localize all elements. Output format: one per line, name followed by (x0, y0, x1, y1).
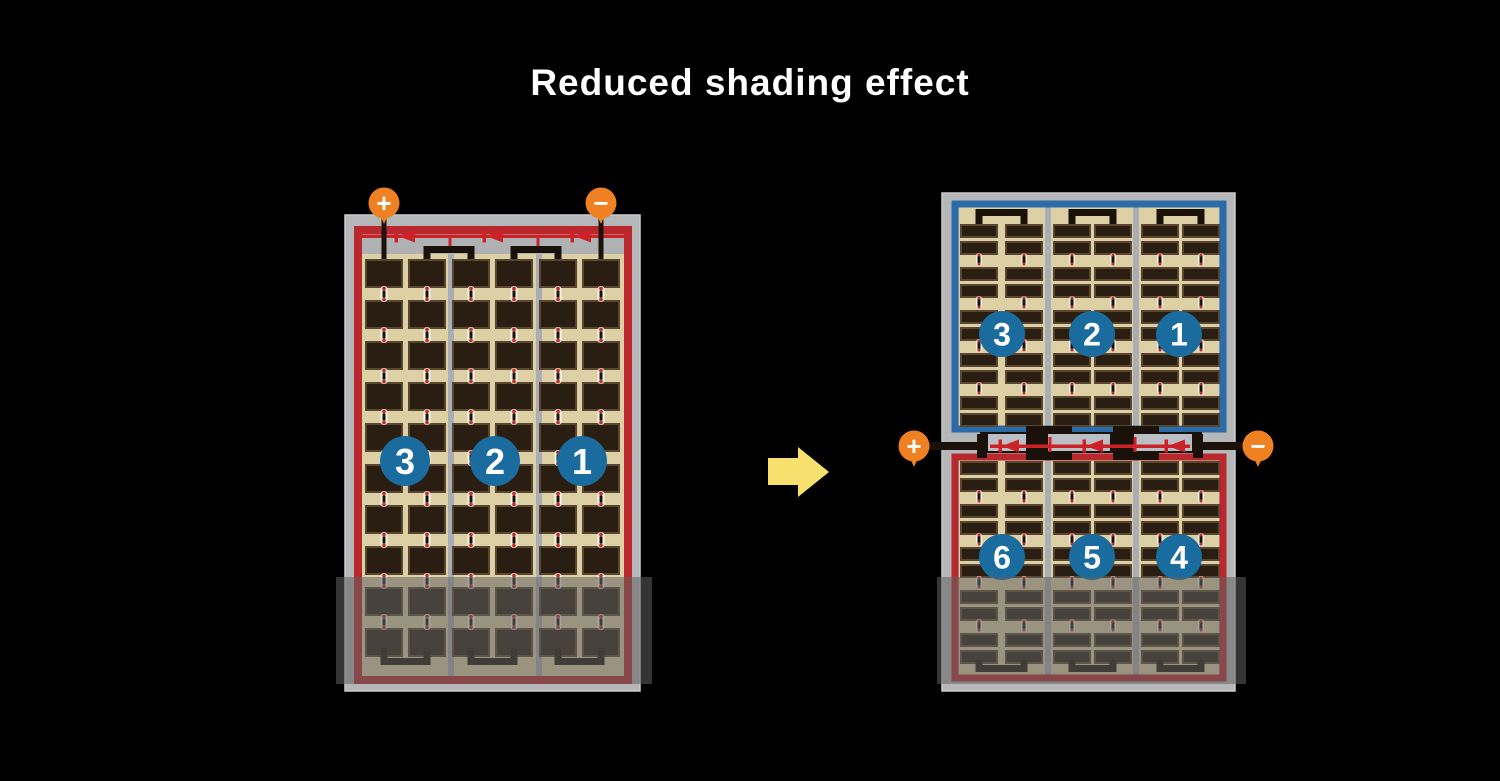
cell-connector (1157, 296, 1163, 309)
cell-connector (1110, 490, 1116, 503)
cell-connector (598, 368, 605, 384)
section-number-label: 1 (572, 441, 592, 482)
solar-cell (583, 342, 619, 369)
section-number-label: 4 (1170, 540, 1188, 576)
solar-cell (1006, 414, 1042, 426)
solar-cell (583, 506, 619, 533)
solar-cell (1095, 522, 1131, 534)
solar-cell (1183, 462, 1219, 474)
cell-connector (511, 286, 518, 302)
solar-cell (1142, 414, 1178, 426)
section-number-badge: 2 (1069, 311, 1115, 357)
section-number-badge: 1 (557, 436, 607, 486)
cell-connector (976, 382, 982, 395)
solar-cell (1142, 371, 1178, 383)
solar-cell (496, 301, 532, 328)
solar-cell (1006, 397, 1042, 409)
solar-cell (1095, 268, 1131, 280)
solar-cell (540, 301, 576, 328)
cell-connector (1198, 533, 1204, 546)
cell-connector (468, 491, 475, 507)
solar-cell (409, 383, 445, 410)
solar-cell (961, 397, 997, 409)
solar-cell (1006, 371, 1042, 383)
plus-terminal-label: + (376, 188, 391, 218)
plus-terminal: + (899, 431, 930, 468)
cell-connector (1069, 490, 1075, 503)
solar-cell (1006, 354, 1042, 366)
solar-cell (1054, 371, 1090, 383)
solar-cell (1095, 505, 1131, 517)
transition-arrow (768, 447, 829, 497)
cell-connector (381, 327, 388, 343)
cell-connector (976, 490, 982, 503)
solar-cell (366, 383, 402, 410)
solar-cell (1142, 285, 1178, 297)
cell-connector (1198, 296, 1204, 309)
shading-overlay (937, 577, 1246, 684)
solar-cell (583, 301, 619, 328)
solar-cell (1006, 479, 1042, 491)
solar-cell (1183, 354, 1219, 366)
bus-tap (1049, 437, 1052, 453)
solar-cell (1183, 505, 1219, 517)
cell-connector (1157, 253, 1163, 266)
wire-end-post (1193, 434, 1203, 458)
solar-cell (1183, 285, 1219, 297)
solar-cell (1095, 354, 1131, 366)
section-number-label: 5 (1083, 540, 1101, 576)
solar-cell (1054, 522, 1090, 534)
solar-cell (1142, 522, 1178, 534)
solar-module-diagram: +−321321654+− (0, 0, 1500, 781)
solar-cell (1006, 462, 1042, 474)
plus-terminal-label: + (906, 431, 921, 461)
solar-cell (1095, 285, 1131, 297)
cell-connector (1021, 533, 1027, 546)
solar-cell (453, 342, 489, 369)
cell-connector (424, 286, 431, 302)
cell-connector (555, 491, 562, 507)
solar-cell (409, 260, 445, 287)
cell-connector (511, 532, 518, 548)
cell-connector (1157, 490, 1163, 503)
cell-connector (1069, 253, 1075, 266)
cell-connector (1021, 296, 1027, 309)
solar-cell (409, 506, 445, 533)
solar-cell (453, 301, 489, 328)
cell-connector (511, 327, 518, 343)
section-number-label: 3 (395, 441, 415, 482)
section-number-label: 2 (1083, 317, 1101, 353)
solar-cell (1142, 242, 1178, 254)
section-number-label: 1 (1170, 317, 1188, 353)
cell-connector (424, 327, 431, 343)
solar-cell (1183, 479, 1219, 491)
cell-connector (598, 286, 605, 302)
solar-cell (1054, 505, 1090, 517)
solar-cell (1142, 462, 1178, 474)
section-number-label: 3 (993, 317, 1011, 353)
solar-cell (409, 547, 445, 574)
solar-cell (583, 260, 619, 287)
solar-cell (1054, 479, 1090, 491)
solar-cell (496, 547, 532, 574)
solar-cell (1183, 371, 1219, 383)
cell-connector (424, 409, 431, 425)
solar-cell (496, 342, 532, 369)
section-number-badge: 1 (1156, 311, 1202, 357)
cell-connector (555, 286, 562, 302)
solar-cell (1054, 462, 1090, 474)
cell-connector (468, 327, 475, 343)
section-number-label: 6 (993, 540, 1011, 576)
cell-connector (555, 409, 562, 425)
right-panel-module: 321654+− (899, 193, 1274, 691)
solar-cell (1054, 225, 1090, 237)
cell-connector (555, 327, 562, 343)
solar-cell (961, 522, 997, 534)
solar-cell (961, 371, 997, 383)
cell-connector (555, 368, 562, 384)
solar-cell (1054, 354, 1090, 366)
solar-cell (1006, 225, 1042, 237)
solar-cell (409, 342, 445, 369)
crossing-wire (1026, 452, 1072, 460)
section-number-badge: 3 (979, 311, 1025, 357)
solar-cell (1183, 225, 1219, 237)
solar-cell (453, 383, 489, 410)
solar-cell (1183, 268, 1219, 280)
cell-connector (1069, 382, 1075, 395)
cell-connector (381, 532, 388, 548)
cell-connector (598, 491, 605, 507)
left-panel-module: +−321 (336, 188, 652, 692)
cell-connector (598, 532, 605, 548)
cell-connector (1110, 253, 1116, 266)
solar-cell (1142, 397, 1178, 409)
solar-cell (1095, 414, 1131, 426)
section-number-badge: 6 (979, 534, 1025, 580)
cell-connector (381, 286, 388, 302)
cell-connector (381, 368, 388, 384)
solar-cell (1095, 371, 1131, 383)
solar-cell (961, 414, 997, 426)
cell-connector (1021, 382, 1027, 395)
solar-cell (540, 342, 576, 369)
solar-cell (1095, 397, 1131, 409)
solar-cell (1183, 242, 1219, 254)
cell-connector (555, 532, 562, 548)
minus-terminal-label: − (1250, 431, 1265, 461)
solar-cell (1183, 414, 1219, 426)
section-number-label: 2 (485, 441, 505, 482)
solar-cell (540, 506, 576, 533)
right-arrow-icon (768, 447, 829, 497)
cell-connector (1198, 490, 1204, 503)
cell-connector (1198, 382, 1204, 395)
cell-connector (468, 368, 475, 384)
cell-connector (381, 491, 388, 507)
solar-cell (961, 354, 997, 366)
solar-cell (540, 260, 576, 287)
bus-tap (1134, 437, 1137, 453)
cell-connector (976, 533, 982, 546)
solar-cell (496, 506, 532, 533)
section-separator (1133, 207, 1139, 426)
solar-cell (540, 383, 576, 410)
solar-cell (961, 462, 997, 474)
cell-connector (424, 368, 431, 384)
section-number-badge: 5 (1069, 534, 1115, 580)
solar-cell (1142, 479, 1178, 491)
cell-connector (511, 491, 518, 507)
cell-connector (381, 409, 388, 425)
solar-cell (583, 383, 619, 410)
cell-connector (1110, 296, 1116, 309)
solar-cell (366, 506, 402, 533)
cell-connector (976, 296, 982, 309)
cell-connector (1110, 382, 1116, 395)
solar-cell (1095, 225, 1131, 237)
solar-cell (453, 547, 489, 574)
section-number-badge: 2 (470, 436, 520, 486)
cell-connector (468, 409, 475, 425)
solar-cell (1006, 505, 1042, 517)
junction-gray-segment (988, 434, 1026, 451)
cell-connector (1198, 253, 1204, 266)
solar-cell (1006, 522, 1042, 534)
solar-cell (1142, 505, 1178, 517)
cell-connector (1157, 382, 1163, 395)
wire-end-post (977, 434, 987, 458)
solar-cell (453, 506, 489, 533)
solar-cell (1095, 462, 1131, 474)
solar-cell (1054, 242, 1090, 254)
cell-connector (511, 368, 518, 384)
cell-connector (1021, 253, 1027, 266)
crossing-wire (1113, 452, 1159, 460)
cell-connector (1021, 490, 1027, 503)
cell-connector (468, 286, 475, 302)
section-separator (1045, 207, 1051, 426)
solar-cell (1054, 397, 1090, 409)
solar-cell (1183, 397, 1219, 409)
solar-cell (1006, 268, 1042, 280)
solar-cell (1054, 414, 1090, 426)
solar-cell (366, 260, 402, 287)
cell-connector (598, 327, 605, 343)
terminal-wire (926, 442, 978, 450)
solar-cell (1142, 268, 1178, 280)
cell-connector (511, 409, 518, 425)
solar-cell (583, 547, 619, 574)
solar-cell (496, 383, 532, 410)
solar-cell (961, 479, 997, 491)
solar-cell (1095, 242, 1131, 254)
section-number-badge: 3 (380, 436, 430, 486)
solar-cell (1054, 268, 1090, 280)
solar-cell (961, 268, 997, 280)
crossing-wire (1026, 426, 1072, 434)
solar-cell (453, 260, 489, 287)
cell-connector (424, 532, 431, 548)
solar-cell (366, 342, 402, 369)
solar-cell (1006, 285, 1042, 297)
solar-cell (1142, 225, 1178, 237)
shading-overlay (336, 577, 652, 684)
solar-cell (1095, 479, 1131, 491)
solar-cell (961, 285, 997, 297)
cell-connector (424, 491, 431, 507)
cell-connector (976, 253, 982, 266)
minus-terminal: − (1243, 431, 1274, 468)
diagram-stage: Reduced shading effect +−321321654+− (0, 0, 1500, 781)
minus-terminal-label: − (593, 188, 608, 218)
section-number-badge: 4 (1156, 534, 1202, 580)
solar-cell (961, 505, 997, 517)
solar-cell (540, 547, 576, 574)
solar-cell (409, 301, 445, 328)
solar-cell (366, 547, 402, 574)
solar-cell (366, 301, 402, 328)
crossing-wire (1113, 426, 1159, 434)
solar-cell (961, 242, 997, 254)
solar-cell (961, 225, 997, 237)
solar-cell (1006, 242, 1042, 254)
cell-connector (468, 532, 475, 548)
solar-cell (1183, 522, 1219, 534)
cell-connector (598, 409, 605, 425)
terminal-wire (1202, 442, 1244, 450)
solar-cell (1054, 285, 1090, 297)
cell-connector (1069, 296, 1075, 309)
solar-cell (496, 260, 532, 287)
